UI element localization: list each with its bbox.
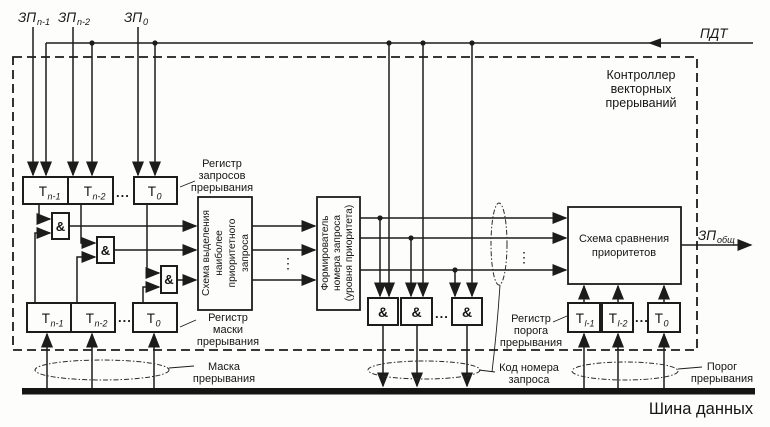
request-number-former-box: Формирователь номера запроса (уровня при… <box>317 197 360 310</box>
cell-subscript: 0 <box>157 192 162 202</box>
threshold-register-label: Регистр <box>511 313 551 325</box>
zp-mid-subscript: n-2 <box>77 17 90 27</box>
cell-label: Т <box>86 311 94 326</box>
cell-label: Т <box>576 311 584 326</box>
data-bus <box>22 388 755 395</box>
request-register-label: Регистр <box>202 158 242 170</box>
former-line: Формирователь <box>320 216 331 291</box>
priority-code-bus <box>360 215 566 296</box>
comparator-line: приоритетов <box>592 247 656 259</box>
request-register-label: прерывания <box>191 182 253 194</box>
code-annotation: Код номера <box>499 362 560 374</box>
request-register: Т n-1 Т n-2 Т 0 ... <box>23 177 177 204</box>
request-input-lines <box>33 27 155 175</box>
mask-annotation: прерывания <box>193 373 255 385</box>
strobe-lines <box>389 43 472 296</box>
cell-subscript: 0 <box>156 319 161 329</box>
threshold-annotation: Порог <box>707 361 737 373</box>
cell-label: Т <box>84 184 92 199</box>
threshold-register: Т l-1 Т l-2 Т 0 ... <box>568 303 680 332</box>
mask-register: Т n-1 Т n-2 Т 0 ... <box>27 303 177 332</box>
register-ellipsis: ... <box>116 185 130 200</box>
and-symbol: & <box>164 272 173 287</box>
vdots: ⋮ <box>517 249 531 265</box>
pdt-arrowhead <box>648 38 661 48</box>
zp-hi-label: ЗП <box>18 10 36 25</box>
diagram-canvas: Т n-1 Т n-2 Т 0 ... Т n-1 Т n-2 Т 0 ... … <box>0 0 770 427</box>
cell-subscript: n-2 <box>95 319 108 329</box>
register-ellipsis: ... <box>118 310 132 325</box>
bus-group-ellipse <box>491 203 507 285</box>
cell-label: Т <box>655 311 663 326</box>
mask-register-label: Регистр <box>208 312 248 324</box>
code-group-ellipse <box>368 361 480 379</box>
gates-ellipsis: ... <box>435 306 449 321</box>
comparator-line: Схема сравнения <box>579 233 669 245</box>
cell-subscript: l-2 <box>618 319 628 329</box>
threshold-wiring <box>584 286 664 388</box>
cell-label: Т <box>148 184 156 199</box>
and-symbol: & <box>101 243 110 258</box>
interrupt-controller-diagram: Т n-1 Т n-2 Т 0 ... Т n-1 Т n-2 Т 0 ... … <box>0 0 770 427</box>
threshold-register-label: прерывания <box>500 337 562 349</box>
cell-label: Т <box>39 184 47 199</box>
zp-hi-subscript: n-1 <box>37 17 50 27</box>
selector-line: приоритетного <box>227 218 238 287</box>
cell-subscript: n-1 <box>48 192 61 202</box>
register-ellipsis: ... <box>635 310 649 325</box>
zp-common-subscript: общ <box>717 235 735 245</box>
and-symbol: & <box>462 304 472 320</box>
cell-label: Т <box>42 311 50 326</box>
pdt-line <box>46 38 753 48</box>
selector-line: запроса <box>240 234 251 272</box>
controller-title: Контроллер <box>607 68 676 82</box>
selector-line: Схема выделения <box>201 210 212 296</box>
threshold-register-label: порога <box>514 325 549 337</box>
zp-lo-subscript: 0 <box>143 17 148 27</box>
cell-label: Т <box>147 311 155 326</box>
cell-subscript: l-1 <box>585 319 595 329</box>
former-line: номера запроса <box>332 215 343 291</box>
mask-and-gates: & & & <box>52 213 177 293</box>
threshold-annotation: прерывания <box>691 373 753 385</box>
mask-register-label: маски <box>213 324 243 336</box>
mask-register-label: прерывания <box>197 336 259 348</box>
zp-mid-label: ЗП <box>58 10 76 25</box>
data-bus-label: Шина данных <box>649 400 754 418</box>
output-and-gates: & & & ... <box>368 298 482 325</box>
and-symbol: & <box>378 304 388 320</box>
priority-selector-box: Схема выделения наиболее приоритетного з… <box>198 197 252 310</box>
threshold-group-ellipse <box>572 362 678 380</box>
cell-subscript: n-2 <box>93 192 106 202</box>
cell-subscript: 0 <box>664 319 669 329</box>
mask-group-ellipse <box>35 360 169 380</box>
former-line: (уровня приоритета) <box>344 205 355 301</box>
controller-title: векторных <box>611 82 672 96</box>
vdots: ⋮ <box>281 255 295 271</box>
code-annotation: запроса <box>509 374 551 386</box>
priority-comparator-box: Схема сравнения приоритетов <box>568 207 681 284</box>
zp-common-label: ЗП <box>698 228 716 243</box>
pdt-label: ПДТ <box>700 26 729 41</box>
selector-former-lines <box>252 226 315 280</box>
request-register-label: запросов <box>199 170 246 182</box>
mask-annotation: Маска <box>208 361 241 373</box>
cell-label: Т <box>609 311 617 326</box>
code-output-lines <box>383 325 467 386</box>
and-symbol: & <box>411 304 421 320</box>
controller-title: прерываний <box>606 96 677 110</box>
and-symbol: & <box>56 219 65 234</box>
cell-subscript: n-1 <box>51 319 64 329</box>
zp-lo-label: ЗП <box>124 10 142 25</box>
selector-line: наиболее <box>213 230 225 276</box>
